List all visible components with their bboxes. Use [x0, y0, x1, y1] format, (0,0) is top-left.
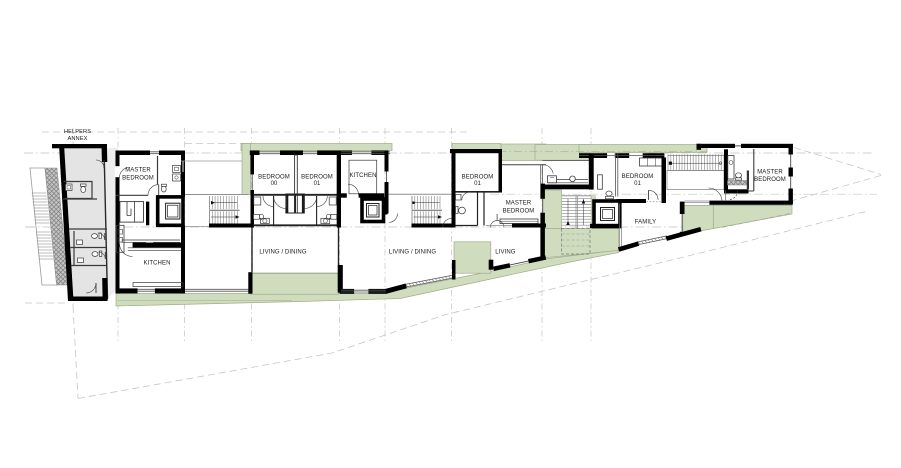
svg-text:BEDROOM: BEDROOM	[503, 208, 535, 214]
svg-text:01: 01	[314, 181, 321, 187]
svg-text:BEDROOM: BEDROOM	[301, 174, 333, 180]
svg-text:MASTER: MASTER	[125, 168, 151, 174]
svg-text:01: 01	[474, 181, 481, 187]
svg-text:FAMILY: FAMILY	[635, 219, 657, 225]
svg-text:BEDROOM: BEDROOM	[122, 175, 154, 181]
svg-text:HELPERS: HELPERS	[64, 129, 91, 135]
svg-text:MASTER: MASTER	[506, 201, 532, 207]
svg-text:BEDROOM: BEDROOM	[258, 174, 290, 180]
svg-text:MASTER: MASTER	[757, 169, 783, 175]
svg-text:LIVING / DINING: LIVING / DINING	[259, 249, 306, 255]
svg-text:KITCHEN: KITCHEN	[349, 173, 376, 179]
svg-text:ANNEX: ANNEX	[67, 136, 87, 142]
svg-text:00: 00	[271, 181, 278, 187]
svg-text:LIVING: LIVING	[495, 249, 516, 255]
svg-text:BEDROOM: BEDROOM	[462, 174, 494, 180]
svg-text:BEDROOM: BEDROOM	[754, 177, 786, 183]
svg-text:KITCHEN: KITCHEN	[143, 260, 170, 266]
svg-text:01: 01	[634, 181, 641, 187]
svg-text:LIVING / DINING: LIVING / DINING	[389, 249, 436, 255]
svg-text:BEDROOM: BEDROOM	[622, 174, 654, 180]
